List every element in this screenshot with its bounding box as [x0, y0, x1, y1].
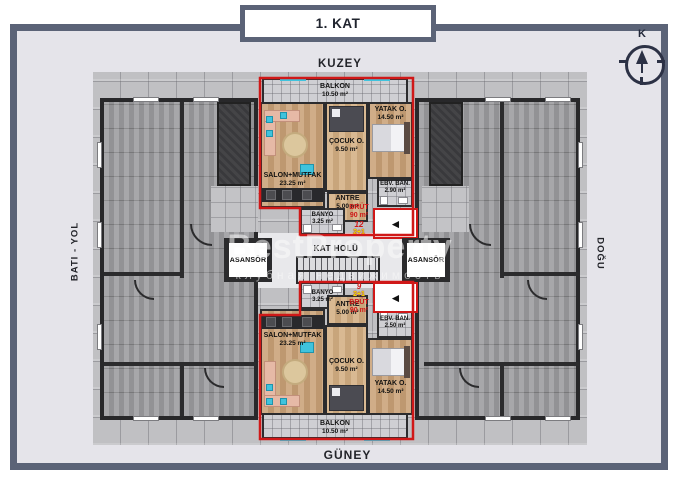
unit-number: 12	[345, 220, 373, 229]
pillow	[266, 398, 273, 405]
door-arc	[190, 224, 212, 246]
unit-info-block: BRÜT 90 m² 12 2+1	[345, 204, 373, 237]
unit-number: 9	[345, 282, 373, 291]
door-arc	[469, 224, 491, 246]
door-arc	[134, 280, 154, 300]
pillow	[332, 388, 340, 396]
window	[133, 416, 159, 421]
window	[545, 97, 571, 102]
floor-plan-canvas: ASANSÖR ASANSÖR KAT HOLÜ BALKON 10.50 m²…	[93, 72, 587, 445]
window	[193, 97, 219, 102]
door-arc	[527, 280, 547, 300]
direction-north: KUZEY	[300, 58, 380, 70]
unit-type: 2+1	[345, 229, 373, 237]
corridor-patch-right	[422, 186, 469, 232]
window	[97, 142, 102, 168]
wall	[500, 272, 580, 276]
balcony-glass	[364, 438, 390, 441]
sink	[332, 286, 342, 293]
entrance-arrow-icon: ◄	[390, 292, 402, 304]
entrance-arrow-box: ◄	[373, 208, 418, 239]
window	[133, 97, 159, 102]
kitchen-counter	[262, 315, 323, 329]
brut-area: 90 m²	[345, 212, 373, 220]
room-balkon: BALKON 10.50 m²	[262, 413, 408, 439]
floor-plan-page: ASANSÖR ASANSÖR KAT HOLÜ BALKON 10.50 m²…	[0, 0, 679, 480]
window	[97, 324, 102, 350]
wall	[500, 102, 504, 278]
balcony-glass	[280, 78, 306, 81]
wall	[500, 362, 504, 416]
toilet	[303, 224, 312, 233]
window	[578, 142, 583, 168]
elevator-right: ASANSÖR	[402, 238, 450, 282]
headboard	[404, 122, 410, 154]
wall	[104, 272, 184, 276]
door-arc	[459, 368, 479, 388]
wall	[180, 102, 184, 278]
appliance	[282, 190, 292, 200]
hall-label: KAT HOLÜ	[286, 244, 386, 253]
sink	[332, 224, 342, 231]
brut-area: 90 m²	[345, 307, 373, 315]
sink	[398, 197, 408, 204]
toilet	[380, 196, 388, 205]
appliance	[282, 317, 292, 327]
appliance	[266, 190, 276, 200]
elevator-left: ASANSÖR	[224, 238, 272, 282]
brut-label: BRÜT	[345, 299, 373, 307]
direction-south: GÜNEY	[300, 448, 395, 462]
kid-bed	[329, 106, 364, 132]
kid-bed	[329, 385, 364, 411]
unit-info-block: 9 2+1 BRÜT 90 m²	[345, 282, 373, 315]
pillow	[280, 398, 287, 405]
armchair	[300, 342, 314, 353]
floor-title: 1. KAT	[316, 16, 361, 31]
pillow	[280, 112, 287, 119]
balcony-glass	[280, 438, 306, 441]
pillow	[266, 384, 273, 391]
apartment-unit-12: BALKON 10.50 m² SALON+MUTFAK 23.25 m²	[258, 76, 415, 237]
bed	[372, 348, 406, 376]
brut-label: BRÜT	[345, 204, 373, 212]
room-name: BALKON	[264, 83, 406, 91]
compass-tick-west	[619, 60, 627, 63]
elevator-right-label: ASANSÖR	[408, 257, 444, 264]
window	[485, 416, 511, 421]
window	[578, 324, 583, 350]
window	[193, 416, 219, 421]
direction-east: DOĞU	[595, 214, 606, 294]
entrance-arrow-box: ◄	[373, 282, 418, 313]
compass-needle-stem	[641, 63, 643, 73]
pillow	[266, 116, 273, 123]
blanket	[373, 125, 391, 151]
room-balkon: BALKON 10.50 m²	[262, 78, 408, 104]
stair-rail	[298, 270, 378, 272]
bed	[372, 124, 406, 152]
window	[97, 222, 102, 248]
shaft-left	[217, 102, 251, 186]
room-name: BALKON	[264, 420, 406, 428]
floor-title-box: 1. KAT	[240, 5, 436, 42]
headboard	[404, 346, 410, 378]
sink	[398, 313, 408, 320]
entrance-arrow-icon: ◄	[390, 218, 402, 230]
window	[578, 222, 583, 248]
blanket	[373, 349, 391, 375]
rug	[282, 132, 308, 158]
direction-west: BATI - YOL	[70, 212, 81, 292]
balcony-glass	[364, 78, 390, 81]
window	[485, 97, 511, 102]
compass: K	[616, 28, 668, 90]
window	[545, 416, 571, 421]
room-area: 10.50 m²	[264, 428, 406, 436]
compass-needle-icon	[636, 50, 648, 64]
toilet	[303, 285, 312, 294]
compass-tick-east	[657, 60, 665, 63]
toilet	[380, 312, 388, 321]
corridor-patch-left	[211, 186, 258, 232]
apartment-unit-9: BANYO 3.25 m² 9 2+1 BRÜT 90 m² ◄ ANTRE 5…	[258, 280, 415, 441]
wall	[180, 362, 184, 416]
kitchen-counter	[262, 188, 323, 202]
door-arc	[204, 368, 224, 388]
armchair	[300, 164, 314, 175]
compass-tick-south	[640, 77, 643, 85]
room-area: 10.50 m²	[264, 91, 406, 99]
compass-ring	[622, 42, 662, 82]
appliance	[302, 190, 312, 200]
shaft-right	[429, 102, 463, 186]
pillow	[332, 109, 340, 117]
appliance	[266, 317, 276, 327]
pillow	[266, 130, 273, 137]
compass-north-letter: K	[616, 28, 668, 40]
appliance	[302, 317, 312, 327]
rug	[282, 359, 308, 385]
elevator-left-label: ASANSÖR	[230, 257, 266, 264]
